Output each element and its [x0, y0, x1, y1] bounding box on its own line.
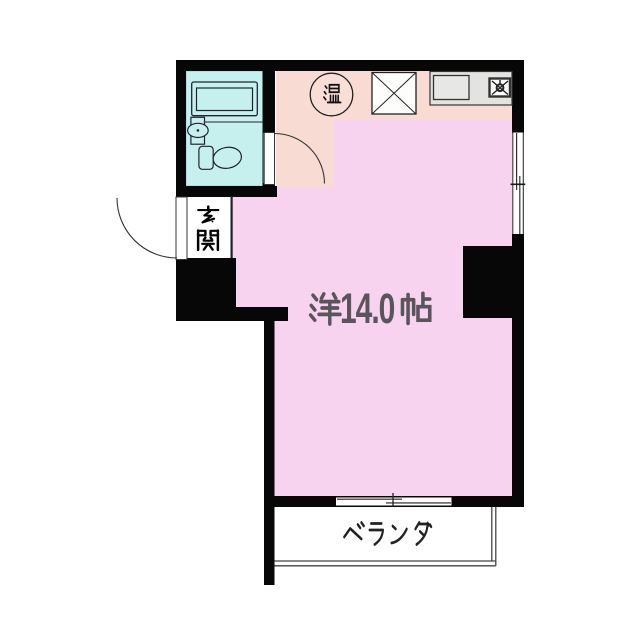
- svg-text:14.0: 14.0: [340, 284, 395, 333]
